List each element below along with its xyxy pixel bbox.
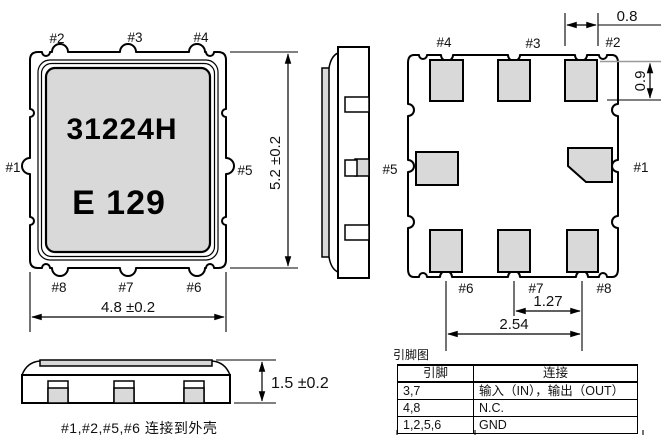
bottom-pad-4 <box>430 60 463 101</box>
bottom-pin1-label: #1 <box>633 160 648 175</box>
profile-flare-left <box>22 361 40 375</box>
pin-table-header-row: 引脚 连接 <box>398 365 638 382</box>
pin-table-block: 引脚图 引脚 连接 3,7 输入（IN），输出（OUT） 4,8 N.C. 1,… <box>392 346 638 434</box>
pad-width-text: 0.8 <box>617 8 638 25</box>
side-lid-strip <box>322 68 329 257</box>
case-connection-note: #1,#2,#5,#6 连接到外壳 <box>61 418 217 438</box>
front-pin5-label: #5 <box>237 163 252 178</box>
side-pad-middle <box>345 160 357 176</box>
marking-text-line1: 31224H <box>66 113 177 146</box>
pitch1-text: 1.27 <box>533 293 562 310</box>
front-pin6-label: #6 <box>186 280 201 295</box>
conn-cell: GND <box>474 417 638 434</box>
side-lid-curve-top <box>329 53 338 68</box>
profile-flare-right <box>212 361 230 375</box>
conn-cell: 输入（IN），输出（OUT） <box>474 382 638 400</box>
width-dim-text: 4.8 ±0.2 <box>101 299 155 316</box>
conn-cell: N.C. <box>474 400 638 417</box>
bottom-pin8-label: #8 <box>596 281 611 296</box>
front-pin8-label: #8 <box>51 280 66 295</box>
bottom-pad-2 <box>565 60 597 101</box>
front-pin2-label: #2 <box>49 31 64 46</box>
marking-text-line2: E 129 <box>72 184 166 222</box>
front-pin7-label: #7 <box>118 280 133 295</box>
bottom-pin2-label: #2 <box>605 35 620 50</box>
bottom-pad-7 <box>498 230 530 272</box>
pin-column-header: 引脚 <box>398 365 474 382</box>
profile-pad-1-base <box>48 388 68 403</box>
thickness-text: 1.5 ±0.2 <box>271 375 329 392</box>
bottom-pad-8 <box>567 230 598 272</box>
profile-view: 1.5 ±0.2 <box>22 360 329 403</box>
pin-cell: 4,8 <box>398 400 474 417</box>
bottom-pin6-label: #6 <box>458 281 473 296</box>
side-pad-top <box>345 97 369 112</box>
table-row: 1,2,5,6 GND <box>398 417 638 434</box>
pitch2-text: 2.54 <box>499 316 528 333</box>
table-row: 3,7 输入（IN），输出（OUT） <box>398 382 638 400</box>
bottom-pin4-label: #4 <box>436 35 452 50</box>
side-lid-curve-bottom <box>329 257 338 272</box>
front-view: 31224H E 129 #2 #3 #4 #1 #5 #8 #7 #6 5.2… <box>5 30 298 332</box>
table-row: 4,8 N.C. <box>398 400 638 417</box>
pad-height-text: 0.9 <box>632 71 649 92</box>
bottom-pad-3 <box>498 60 530 101</box>
height-dim-text: 5.2 ±0.2 <box>267 136 284 190</box>
front-pin1-label: #1 <box>5 160 20 175</box>
front-pin3-label: #3 <box>127 30 142 45</box>
pin-table: 引脚 连接 3,7 输入（IN），输出（OUT） 4,8 N.C. 1,2,5,… <box>397 364 638 434</box>
side-view: #5 <box>322 47 398 278</box>
bottom-view: #4 #3 #2 #1 #6 #7 #8 0.8 0.9 1.27 2.54 <box>408 8 661 351</box>
pin-cell: 1,2,5,6 <box>398 417 474 434</box>
metal-lid <box>46 68 210 252</box>
profile-pad-2-base <box>114 388 134 403</box>
front-pin4-label: #4 <box>193 30 209 45</box>
conn-column-header: 连接 <box>474 365 638 382</box>
profile-lid-strip <box>40 360 212 366</box>
datasheet-drawing-page: 31224H E 129 #2 #3 #4 #1 #5 #8 #7 #6 5.2… <box>0 0 666 446</box>
side-pad-bottom <box>345 225 369 240</box>
pin-cell: 3,7 <box>398 382 474 400</box>
bottom-pin3-label: #3 <box>525 36 540 51</box>
profile-pad-3-base <box>184 388 204 403</box>
bottom-pad-5 <box>416 152 458 185</box>
bottom-pad-6 <box>430 230 462 272</box>
side-pin5-label: #5 <box>382 162 397 177</box>
pin-table-title: 引脚图 <box>393 346 638 363</box>
